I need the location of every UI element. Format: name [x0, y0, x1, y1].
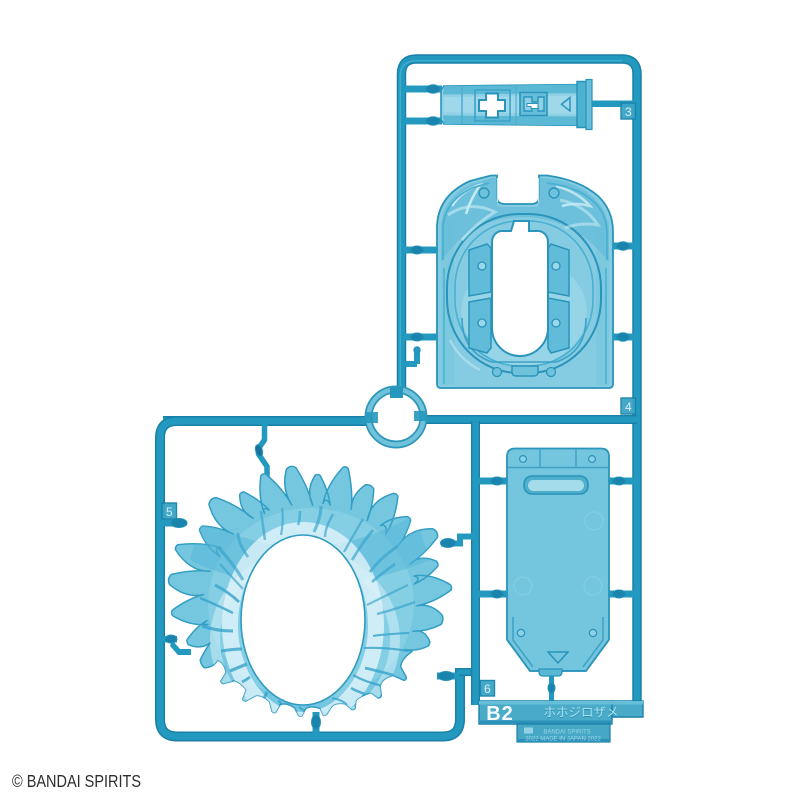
- svg-text:3: 3: [625, 105, 632, 119]
- svg-text:6: 6: [484, 682, 491, 696]
- svg-text:BANDAI SPIRITS: BANDAI SPIRITS: [543, 730, 590, 736]
- svg-text:B2: B2: [486, 703, 514, 725]
- svg-text:ホホジロザメ: ホホジロザメ: [543, 706, 618, 720]
- svg-text:4: 4: [625, 400, 632, 414]
- svg-text:5: 5: [166, 505, 173, 519]
- svg-text:2022 MADE IN JAPAN 2022: 2022 MADE IN JAPAN 2022: [525, 737, 601, 743]
- svg-text:© BANDAI SPIRITS: © BANDAI SPIRITS: [12, 771, 141, 791]
